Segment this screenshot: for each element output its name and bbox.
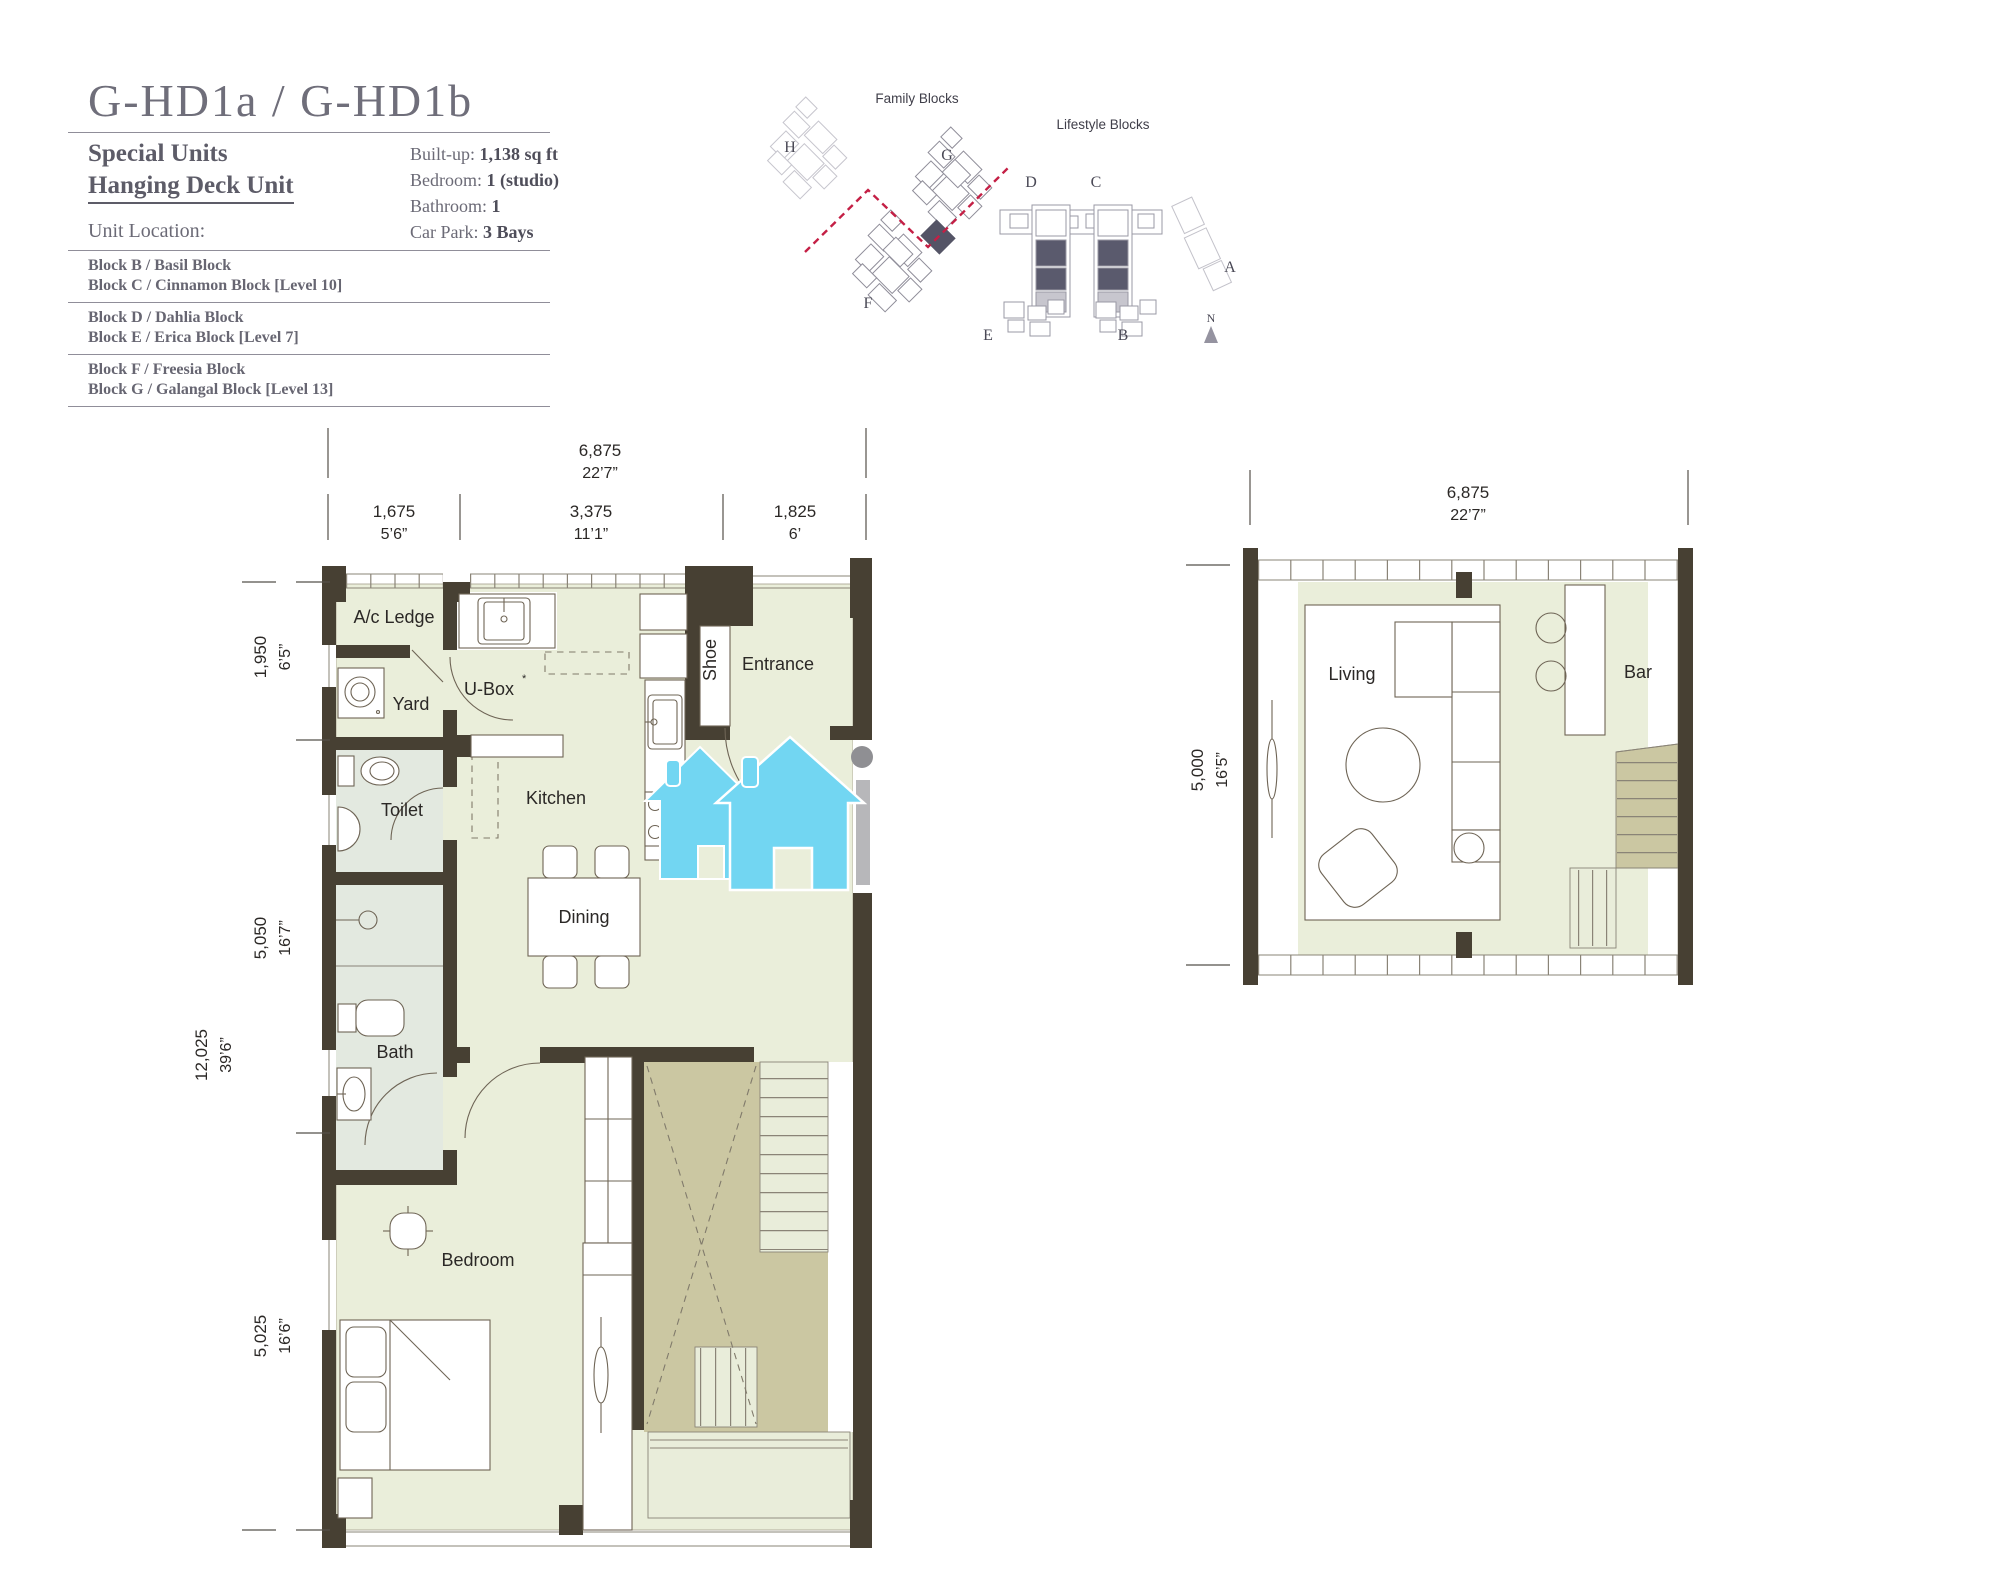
floorplan-page: G-HD1a / G-HD1b Special Units Hanging De…: [0, 0, 2000, 1593]
divider: [68, 250, 550, 251]
room-label-entrance: Entrance: [742, 654, 814, 674]
dim-seg1-ft: 5’6”: [381, 526, 408, 543]
room-label-toilet: Toilet: [381, 800, 423, 820]
dim-left3-mm: 5,025: [251, 1315, 270, 1358]
kitchen-cabinet: [640, 594, 687, 630]
toilet-wc: [338, 756, 399, 786]
dim-left3-ft: 16’6”: [277, 1318, 294, 1354]
main-floor-plan: A/c Ledge Yard U-Box * Shoe Entrance Toi…: [130, 330, 930, 1593]
stair-side-strip: [828, 1062, 853, 1432]
subtitle-special-units: Special Units: [88, 140, 228, 168]
block-group-bc: Block B / Basil Block Block C / Cinnamon…: [88, 256, 342, 296]
kitchen-sink: [645, 695, 682, 749]
room-label-shoe: Shoe: [700, 639, 720, 681]
dim-deck-width-mm: 6,875: [1447, 483, 1490, 502]
room-label-ac-ledge: A/c Ledge: [353, 607, 434, 627]
block-d-label: Block D / Dahlia Block: [88, 308, 299, 328]
map-letter-e: E: [983, 327, 993, 344]
north-compass-icon: N: [1204, 311, 1218, 343]
dim-overall-height-mm: 12,025: [192, 1029, 211, 1081]
dim-left2-ft: 16’7”: [277, 920, 294, 956]
compass-n-label: N: [1207, 311, 1216, 325]
map-letter-g: G: [941, 147, 953, 164]
bar-counter: [1565, 585, 1605, 735]
map-letter-c: C: [1091, 174, 1102, 191]
dim-overall-width-ft: 22’7”: [582, 465, 618, 482]
room-label-kitchen: Kitchen: [526, 788, 586, 808]
spec-bedroom-label: Bedroom:: [410, 170, 487, 190]
family-block-g: [897, 127, 1006, 236]
wall-recess: [851, 735, 873, 893]
watermark-chimney-icon: [666, 760, 680, 786]
map-letter-f: F: [864, 295, 873, 312]
dim-deck-height-mm: 5,000: [1188, 749, 1207, 792]
lifestyle-blocks-label: Lifestyle Blocks: [1056, 117, 1149, 132]
fridge: [640, 634, 687, 678]
room-label-bedroom: Bedroom: [441, 1250, 514, 1270]
spec-built-up-label: Built-up:: [410, 144, 480, 164]
site-map: Family Blocks Lifestyle Blocks: [730, 60, 1250, 360]
dim-seg2-mm: 3,375: [570, 502, 613, 521]
spec-bathroom-label: Bathroom:: [410, 196, 492, 216]
dim-left1-ft: 6’5”: [277, 644, 294, 671]
dim-seg3-mm: 1,825: [774, 502, 817, 521]
room-label-living: Living: [1328, 664, 1375, 684]
bedroom-bench: [338, 1478, 372, 1518]
spec-bathroom-value: 1: [492, 196, 501, 216]
block-c-label: Block C / Cinnamon Block [Level 10]: [88, 276, 342, 296]
dim-left1-mm: 1,950: [251, 636, 270, 679]
divider: [68, 132, 550, 133]
subtitle-hanging-deck-unit: Hanging Deck Unit: [88, 172, 294, 204]
lifestyle-block-a: [1170, 197, 1231, 292]
dim-deck-width-ft: 22’7”: [1450, 507, 1486, 524]
stair-platform: [648, 1432, 850, 1518]
dim-overall-width-mm: 6,875: [579, 441, 622, 460]
spec-built-up: Built-up: 1,138 sq ft: [410, 144, 558, 165]
room-label-ubox-mark: *: [522, 673, 527, 685]
washing-machine: [338, 668, 384, 718]
spec-car-park: Car Park: 3 Bays: [410, 222, 534, 243]
block-b-label: Block B / Basil Block: [88, 256, 342, 276]
dim-seg1-mm: 1,675: [373, 502, 416, 521]
divider: [68, 302, 550, 303]
spec-car-park-label: Car Park:: [410, 222, 483, 242]
dim-seg2-ft: 11’1”: [574, 526, 608, 543]
room-label-dining: Dining: [558, 907, 609, 927]
dim-left2-mm: 5,050: [251, 917, 270, 960]
bed: [340, 1320, 490, 1470]
hanging-deck-plan: Living Bar 6,875 22’7” 5,000 16’5”: [1150, 430, 1770, 1010]
map-letter-b: B: [1118, 327, 1129, 344]
spec-built-up-value: 1,138 sq ft: [480, 144, 559, 164]
family-block-h: [752, 97, 861, 206]
dim-deck-height-ft: 16’5”: [1214, 752, 1231, 788]
dim-overall-height-ft: 39’6”: [218, 1037, 235, 1073]
closet: [585, 1057, 632, 1243]
spec-bathroom: Bathroom: 1: [410, 196, 501, 217]
bath-basin: [337, 1068, 371, 1120]
wardrobe-mirror: [583, 1243, 632, 1530]
kitchen-island-counter: [471, 735, 563, 757]
map-letter-a: A: [1224, 259, 1236, 276]
side-table: [1454, 833, 1484, 863]
watermark-chimney-icon: [742, 757, 758, 787]
room-label-bar: Bar: [1624, 662, 1652, 682]
spec-bedroom: Bedroom: 1 (studio): [410, 170, 559, 191]
spec-car-park-value: 3 Bays: [483, 222, 534, 242]
spec-bedroom-value: 1 (studio): [487, 170, 560, 190]
family-blocks-label: Family Blocks: [875, 91, 959, 106]
coffee-table: [1346, 728, 1420, 802]
room-label-ubox: U-Box: [464, 679, 514, 699]
page-title: G-HD1a / G-HD1b: [88, 74, 473, 127]
map-letter-h: H: [784, 139, 796, 156]
room-label-bath: Bath: [376, 1042, 413, 1062]
unit-location-label: Unit Location:: [88, 220, 205, 243]
room-label-yard: Yard: [393, 694, 430, 714]
map-letter-d: D: [1025, 174, 1037, 191]
dim-seg3-ft: 6’: [789, 526, 801, 543]
lifestyle-blocks-structure: [1000, 205, 1162, 336]
bath-wc: [338, 1000, 404, 1036]
